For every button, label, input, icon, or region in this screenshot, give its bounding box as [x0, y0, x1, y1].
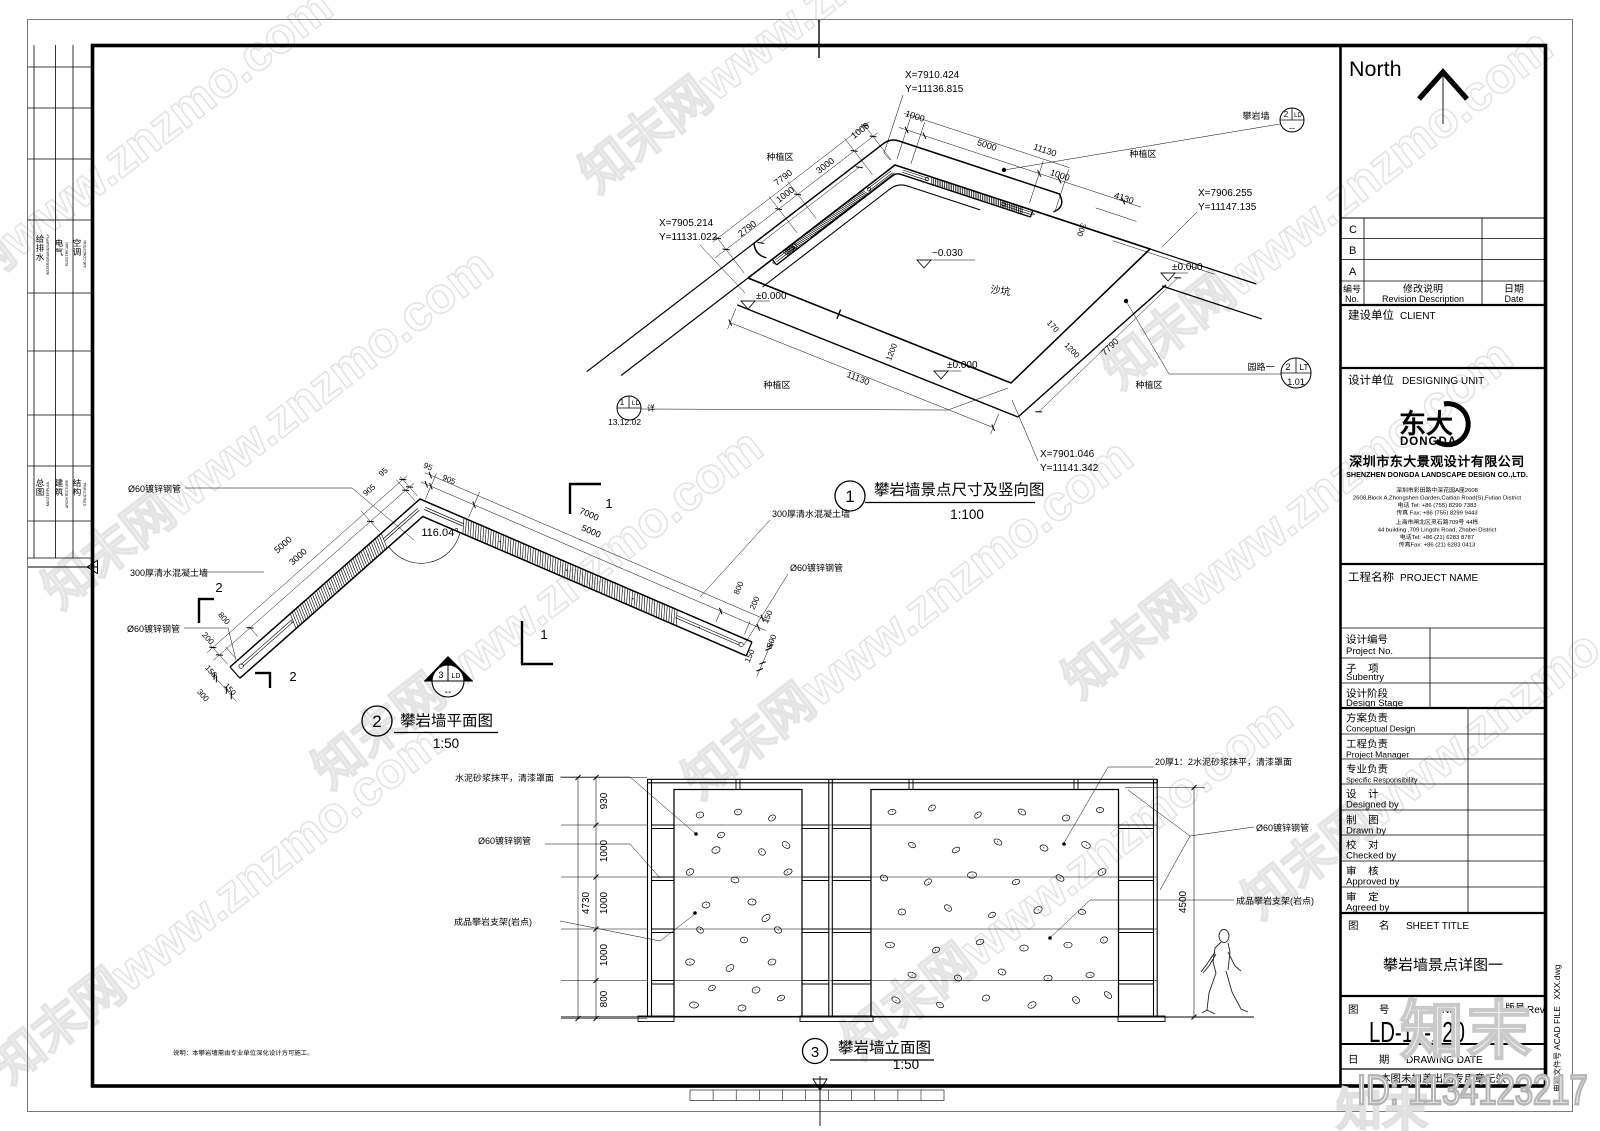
svg-text:4730: 4730	[577, 891, 592, 914]
svg-text:±0.000: ±0.000	[1172, 258, 1203, 273]
svg-text:1: 1	[605, 493, 612, 512]
svg-text:Revision Description: Revision Description	[1382, 292, 1464, 305]
svg-text:No.: No.	[1345, 292, 1359, 305]
svg-text:ARCHITECTURE: ARCHITECTURE	[65, 479, 70, 508]
svg-text:1:50: 1:50	[893, 1053, 919, 1073]
svg-text:种植区: 种植区	[1129, 147, 1156, 160]
svg-text:2: 2	[1284, 109, 1289, 120]
svg-text:成品攀岩支架(岩点): 成品攀岩支架(岩点)	[454, 915, 532, 928]
svg-text:成品攀岩支架(岩点): 成品攀岩支架(岩点)	[1236, 894, 1314, 907]
svg-text:Project No.: Project No.	[1346, 643, 1393, 657]
svg-text:2: 2	[215, 577, 222, 596]
svg-text:ACAD FILE: ACAD FILE	[1551, 1006, 1563, 1050]
svg-text:园路一: 园路一	[1247, 360, 1274, 373]
svg-text:构: 构	[73, 486, 82, 498]
svg-text:详: 详	[647, 403, 655, 414]
svg-text:CLIENT: CLIENT	[1400, 307, 1436, 322]
svg-text:筑: 筑	[55, 486, 64, 498]
svg-text:PROJECT NAME: PROJECT NAME	[1400, 569, 1478, 584]
svg-text:930: 930	[595, 792, 610, 809]
svg-text:XXX.dwg: XXX.dwg	[1551, 964, 1563, 999]
svg-text:Specific Responsibility: Specific Responsibility	[1346, 776, 1418, 786]
svg-text:种植区: 种植区	[763, 378, 790, 391]
svg-text:1.01: 1.01	[1287, 375, 1305, 388]
svg-text:WATER/DRAIN&SUPPLY: WATER/DRAIN&SUPPLY	[46, 233, 51, 275]
svg-text:Drawn by: Drawn by	[1346, 823, 1386, 837]
svg-text:传真 Fax: +86 (755) 8299 9443: 传真 Fax: +86 (755) 8299 9443	[1396, 508, 1478, 517]
svg-text:Designed by: Designed by	[1346, 797, 1399, 811]
svg-text:2: 2	[1285, 360, 1290, 373]
svg-text:A: A	[1349, 263, 1357, 279]
svg-text:LD: LD	[452, 671, 461, 681]
svg-text:水: 水	[36, 251, 45, 263]
svg-text:X=7905.214: X=7905.214	[659, 214, 714, 229]
svg-text:设计单位: 设计单位	[1348, 372, 1394, 388]
svg-text:±0.000: ±0.000	[947, 356, 978, 371]
svg-text:1000: 1000	[595, 891, 610, 914]
svg-text:20厚1：2水泥砂浆抹平，清漆罩面: 20厚1：2水泥砂浆抹平，清漆罩面	[1155, 755, 1292, 768]
svg-text:Ø60镀锌钢管: Ø60镀锌钢管	[127, 622, 180, 635]
svg-text:Ø60镀锌钢管: Ø60镀锌钢管	[790, 561, 843, 574]
svg-text:--: --	[1289, 121, 1295, 134]
svg-text:116.04°: 116.04°	[421, 524, 458, 540]
svg-text:种植区: 种植区	[766, 150, 793, 163]
svg-text:Date: Date	[1504, 292, 1523, 305]
svg-text:1: 1	[845, 482, 854, 507]
svg-text:ID: 1134123217: ID: 1134123217	[1357, 1055, 1588, 1116]
svg-text:Subentry: Subentry	[1346, 669, 1384, 683]
svg-text:SHEET TITLE: SHEET TITLE	[1406, 917, 1469, 932]
svg-text:Y=11141.342: Y=11141.342	[1040, 459, 1099, 474]
svg-text:1:50: 1:50	[433, 732, 459, 752]
svg-text:X=7910.424: X=7910.424	[905, 66, 960, 81]
svg-text:B: B	[1349, 242, 1356, 258]
svg-text:传真Fax: +86 (21) 6283 0413: 传真Fax: +86 (21) 6283 0413	[1399, 540, 1476, 549]
svg-text:STRUCTURAL: STRUCTURAL	[83, 482, 88, 506]
svg-text:MASTERPLAN: MASTERPLAN	[46, 481, 51, 506]
svg-text:LT: LT	[1300, 362, 1309, 373]
svg-text:攀岩墙景点详图一: 攀岩墙景点详图一	[1383, 954, 1503, 975]
svg-text:1: 1	[620, 397, 625, 408]
svg-text:X=7901.046: X=7901.046	[1040, 445, 1095, 460]
svg-text:说明：本攀岩墙需由专业单位深化设计方可施工。: 说明：本攀岩墙需由专业单位深化设计方可施工。	[173, 1048, 314, 1057]
svg-text:1: 1	[540, 624, 547, 643]
svg-text:气: 气	[55, 246, 64, 258]
svg-text:SHENZHEN DONGDA LANDSCAPE DESI: SHENZHEN DONGDA LANDSCAPE DESIGN CO.,LTD…	[1346, 470, 1528, 480]
svg-text:种植区: 种植区	[1135, 378, 1162, 391]
svg-text:1:100: 1:100	[950, 503, 984, 523]
svg-text:Checked by: Checked by	[1346, 848, 1396, 862]
svg-text:800: 800	[595, 990, 610, 1007]
svg-text:LD: LD	[1294, 110, 1302, 119]
svg-text:1000: 1000	[595, 839, 610, 862]
svg-text:Y=11147.135: Y=11147.135	[1198, 198, 1257, 213]
svg-text:专业负责: 专业负责	[1346, 762, 1388, 777]
svg-text:ELECTRICIAN: ELECTRICIAN	[65, 242, 70, 266]
svg-text:3: 3	[811, 1041, 819, 1062]
svg-text:DESIGNING UNIT: DESIGNING UNIT	[1402, 372, 1484, 387]
svg-text:攀岩墙: 攀岩墙	[1242, 109, 1269, 122]
svg-text:图 名: 图 名	[1348, 918, 1389, 933]
svg-text:300厚清水混凝土墙: 300厚清水混凝土墙	[772, 507, 850, 520]
svg-text:C: C	[1349, 221, 1357, 237]
svg-text:Conceptual Design: Conceptual Design	[1346, 723, 1416, 735]
svg-text:Project Manager: Project Manager	[1346, 749, 1409, 761]
svg-text:300厚清水混凝土墙: 300厚清水混凝土墙	[130, 566, 208, 579]
svg-text:沙坑: 沙坑	[990, 281, 1012, 299]
svg-text:3: 3	[438, 668, 443, 681]
svg-text:AIR.CONDITION: AIR.CONDITION	[83, 240, 88, 268]
svg-text:Ø60镀锌钢管: Ø60镀锌钢管	[478, 834, 531, 847]
svg-text:深圳市东大景观设计有限公司: 深圳市东大景观设计有限公司	[1349, 451, 1525, 470]
svg-text:13.12.02: 13.12.02	[608, 416, 641, 428]
svg-text:Y=11131.022: Y=11131.022	[659, 228, 718, 243]
svg-text:−0.030: −0.030	[932, 244, 963, 259]
svg-text:2: 2	[372, 707, 381, 732]
svg-text:Approved by: Approved by	[1346, 874, 1400, 888]
svg-text:工程名称: 工程名称	[1348, 569, 1394, 585]
svg-text:Agreed by: Agreed by	[1346, 900, 1390, 914]
svg-text:攀岩墙景点尺寸及竖向图: 攀岩墙景点尺寸及竖向图	[874, 478, 1045, 500]
svg-text:4500: 4500	[1174, 890, 1189, 913]
svg-text:North: North	[1349, 52, 1402, 83]
svg-text:Ø60镀锌钢管: Ø60镀锌钢管	[1256, 821, 1309, 834]
svg-text:1000: 1000	[595, 943, 610, 966]
svg-text:Y=11136.815: Y=11136.815	[905, 80, 964, 95]
svg-text:调: 调	[73, 246, 82, 258]
svg-text:水泥砂浆抹平，清漆罩面: 水泥砂浆抹平，清漆罩面	[455, 771, 554, 784]
svg-text:图: 图	[36, 486, 45, 498]
svg-text:攀岩墙平面图: 攀岩墙平面图	[400, 709, 493, 731]
svg-text:DONGDA: DONGDA	[1400, 433, 1457, 449]
svg-text:建设单位: 建设单位	[1348, 307, 1394, 323]
svg-text:X=7906.255: X=7906.255	[1198, 184, 1253, 199]
svg-text:--: --	[445, 683, 452, 698]
svg-text:2: 2	[289, 666, 296, 685]
svg-text:Ø60镀锌钢管: Ø60镀锌钢管	[128, 482, 181, 495]
svg-text:±0.000: ±0.000	[756, 287, 787, 302]
svg-text:LD: LD	[632, 397, 641, 407]
